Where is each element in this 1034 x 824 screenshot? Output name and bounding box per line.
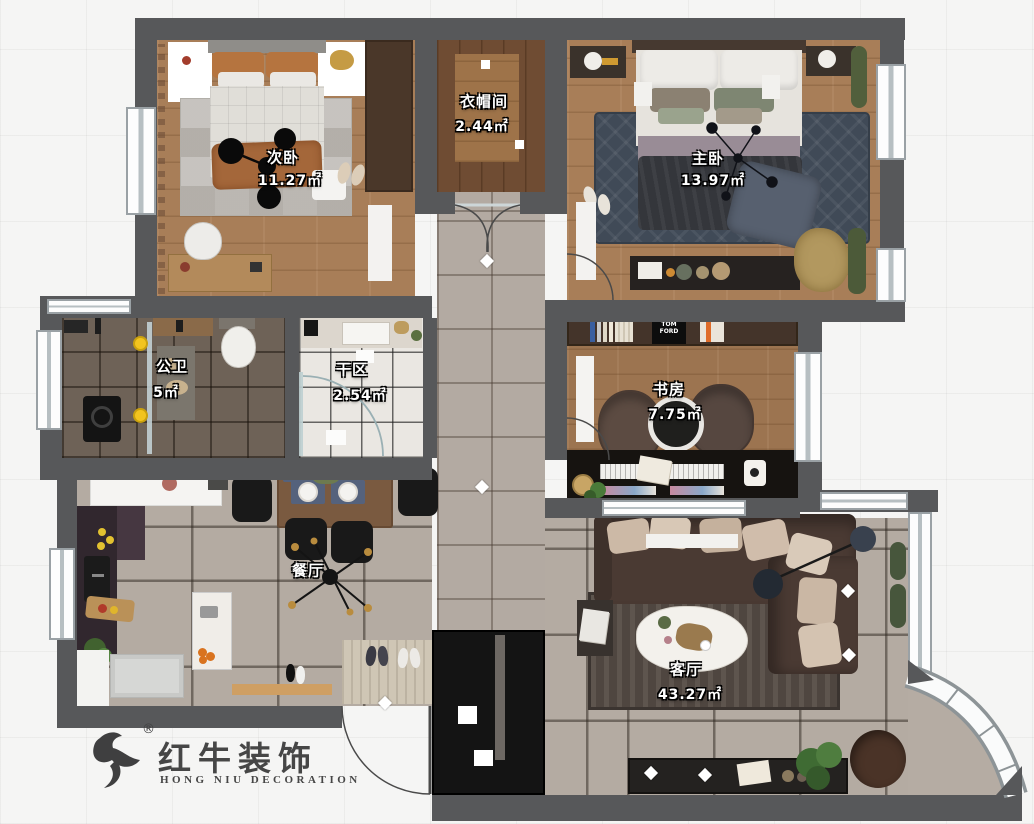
master-green-plant — [848, 228, 866, 294]
coffee-table-decor-pink — [664, 636, 672, 644]
living-plant — [816, 742, 842, 768]
entry-shoes-pair — [286, 664, 295, 682]
lemon — [97, 542, 105, 550]
master-nightstand-decor — [602, 58, 618, 65]
floor-plan-canvas: TOM FORD — [0, 0, 1034, 824]
washing-machine-drum — [91, 406, 113, 428]
master-lamp — [818, 50, 836, 68]
window-plant — [890, 542, 906, 580]
wall-bath-dry-divider — [285, 318, 299, 458]
window-master-east-1 — [876, 64, 906, 160]
room-label-living: 客厅 — [670, 663, 702, 678]
entry-shoes-pair — [296, 666, 305, 684]
lemon — [110, 606, 118, 614]
master-bench-decor — [696, 266, 709, 279]
dry-sink — [342, 322, 390, 345]
lemon — [106, 536, 114, 544]
master-pillow-white — [720, 50, 798, 90]
dry-decor-gold — [394, 321, 409, 334]
logo-subtitle-text: HONG NIU DECORATION — [160, 774, 361, 786]
room-area-dry: 2.54㎡ — [333, 389, 387, 403]
hongniu-bull-icon — [82, 730, 150, 794]
room-area-bath: 5㎡ — [153, 386, 179, 400]
window-living-north — [820, 492, 908, 510]
coffee-table-cup — [700, 640, 711, 651]
plate — [338, 482, 358, 502]
master-door-leaf — [576, 202, 596, 280]
wall-mid-east — [545, 300, 905, 322]
cloakroom-marker — [515, 140, 524, 149]
bed2-mobile-ball — [218, 138, 244, 164]
study-radiator — [576, 356, 594, 442]
room-label-cloakroom: 衣帽间 — [460, 95, 508, 110]
entry-cabinet-handle — [458, 706, 477, 724]
tv-cabinet-paper — [737, 760, 772, 786]
bed2-mobile-ball — [274, 128, 296, 150]
orange — [206, 652, 215, 661]
dry-decor-plant — [411, 330, 422, 341]
sofa-pillow — [796, 577, 837, 626]
shower-fixture — [95, 318, 101, 334]
dining-chair — [232, 476, 272, 522]
dry-appliance — [304, 320, 318, 336]
shower-fixture — [64, 320, 88, 333]
entry-black-cabinet — [432, 630, 545, 795]
bed2-curtain — [158, 44, 165, 294]
entry-cabinet-handle — [474, 750, 493, 766]
room-label-dry: 干区 — [336, 363, 368, 378]
bed2-shelf-decor — [182, 56, 191, 65]
window-bath-west — [36, 330, 62, 430]
master-bench-paper — [638, 262, 662, 279]
room-label-dining: 餐厅 — [292, 564, 324, 579]
window-master-east-2 — [876, 248, 906, 302]
study-round-table — [648, 396, 704, 452]
dining-chair — [285, 518, 327, 560]
window-bed2-west — [126, 107, 156, 215]
monitor — [670, 486, 724, 495]
dry-glass-door — [299, 372, 303, 456]
room-area-bed2: 11.27㎡ — [258, 174, 322, 188]
wall-cloakroom-south-left — [415, 192, 455, 214]
bed2-desk-item — [180, 262, 190, 272]
magazine — [579, 608, 609, 643]
bed2-chair — [184, 222, 222, 260]
window-living-east — [908, 512, 932, 678]
hongniu-logo: ® 红牛装饰 HONG NIU DECORATION — [80, 716, 360, 816]
master-side-table — [634, 82, 652, 106]
registered-mark: ® — [142, 722, 155, 737]
room-area-cloakroom: 2.44㎡ — [455, 120, 509, 134]
keyboard — [668, 464, 724, 479]
toilet-bowl — [221, 326, 256, 368]
logo-brand-text: 红牛装饰 — [158, 732, 318, 780]
tomato — [98, 604, 107, 613]
master-bench-decor — [676, 264, 692, 280]
wall-south-main — [432, 795, 1022, 821]
bed2-wardrobe — [365, 40, 413, 192]
sofa-tray — [646, 534, 738, 548]
room-label-master: 主卧 — [692, 152, 724, 167]
window-kitchen-west — [49, 548, 75, 640]
window-bath-north — [47, 299, 131, 314]
master-green-plant — [851, 46, 867, 108]
master-pillow-accent — [716, 108, 762, 124]
entry-bench — [232, 684, 332, 695]
room-label-bath: 公卫 — [156, 360, 188, 375]
sofa-pillow — [797, 621, 842, 668]
bath-vanity — [153, 318, 213, 336]
plate — [298, 482, 318, 502]
dining-chair — [331, 521, 373, 563]
bed2-shelf — [168, 42, 212, 102]
fridge — [110, 654, 184, 698]
master-pampas-plant — [794, 228, 850, 292]
room-area-living: 43.27㎡ — [658, 688, 722, 702]
window-plant — [890, 584, 906, 628]
dry-tile-highlight — [326, 430, 346, 445]
entry-cabinet-gap — [495, 635, 505, 760]
wall-bed2-cloakroom — [415, 40, 437, 214]
master-pillow-accent — [658, 108, 704, 124]
wall-hall-study-divider — [545, 322, 567, 460]
tv-cabinet-dot — [782, 770, 794, 782]
master-bench-decor — [712, 262, 730, 280]
coffee-table-plant — [658, 616, 671, 629]
window-study-east — [794, 352, 822, 462]
kitchen-cabinet — [117, 506, 145, 560]
living-plant — [806, 766, 830, 790]
master-bench-decor — [666, 268, 675, 277]
window-plant — [959, 735, 1001, 778]
orange — [199, 656, 207, 664]
bed2-gold-plant — [330, 50, 354, 70]
kitchen-corner-unit — [77, 650, 109, 706]
wall-cloakroom-south-right — [520, 192, 567, 214]
island-decor — [200, 606, 218, 618]
wall-cloakroom-master — [545, 40, 567, 214]
ottoman — [850, 730, 906, 788]
cloakroom-marker — [481, 60, 490, 69]
kitchen-faucet — [92, 574, 104, 577]
kitchen-sink — [84, 556, 110, 602]
room-area-study: 7.75㎡ — [648, 408, 702, 422]
tom-ford-text: TOM FORD — [658, 321, 680, 335]
room-area-master: 13.97㎡ — [681, 174, 745, 188]
room-label-study: 书房 — [653, 383, 685, 398]
monitor — [602, 486, 656, 495]
wall-dry-hall-divider — [423, 318, 437, 458]
bed2-desk — [168, 254, 272, 292]
master-lamp — [584, 52, 602, 70]
study-cup-dot — [750, 468, 759, 477]
wall-north — [135, 18, 905, 40]
room-label-bed2: 次卧 — [267, 151, 299, 166]
wall-bath-south — [40, 458, 432, 480]
master-side-table — [762, 75, 780, 99]
bed2-desk-item — [250, 262, 262, 272]
bath-faucet — [176, 320, 183, 332]
lemon — [98, 528, 106, 536]
window-study-living — [602, 500, 746, 516]
bath-yellow-marker — [133, 408, 148, 423]
bed2-white-cabinet — [368, 205, 392, 281]
bath-yellow-marker — [133, 336, 148, 351]
